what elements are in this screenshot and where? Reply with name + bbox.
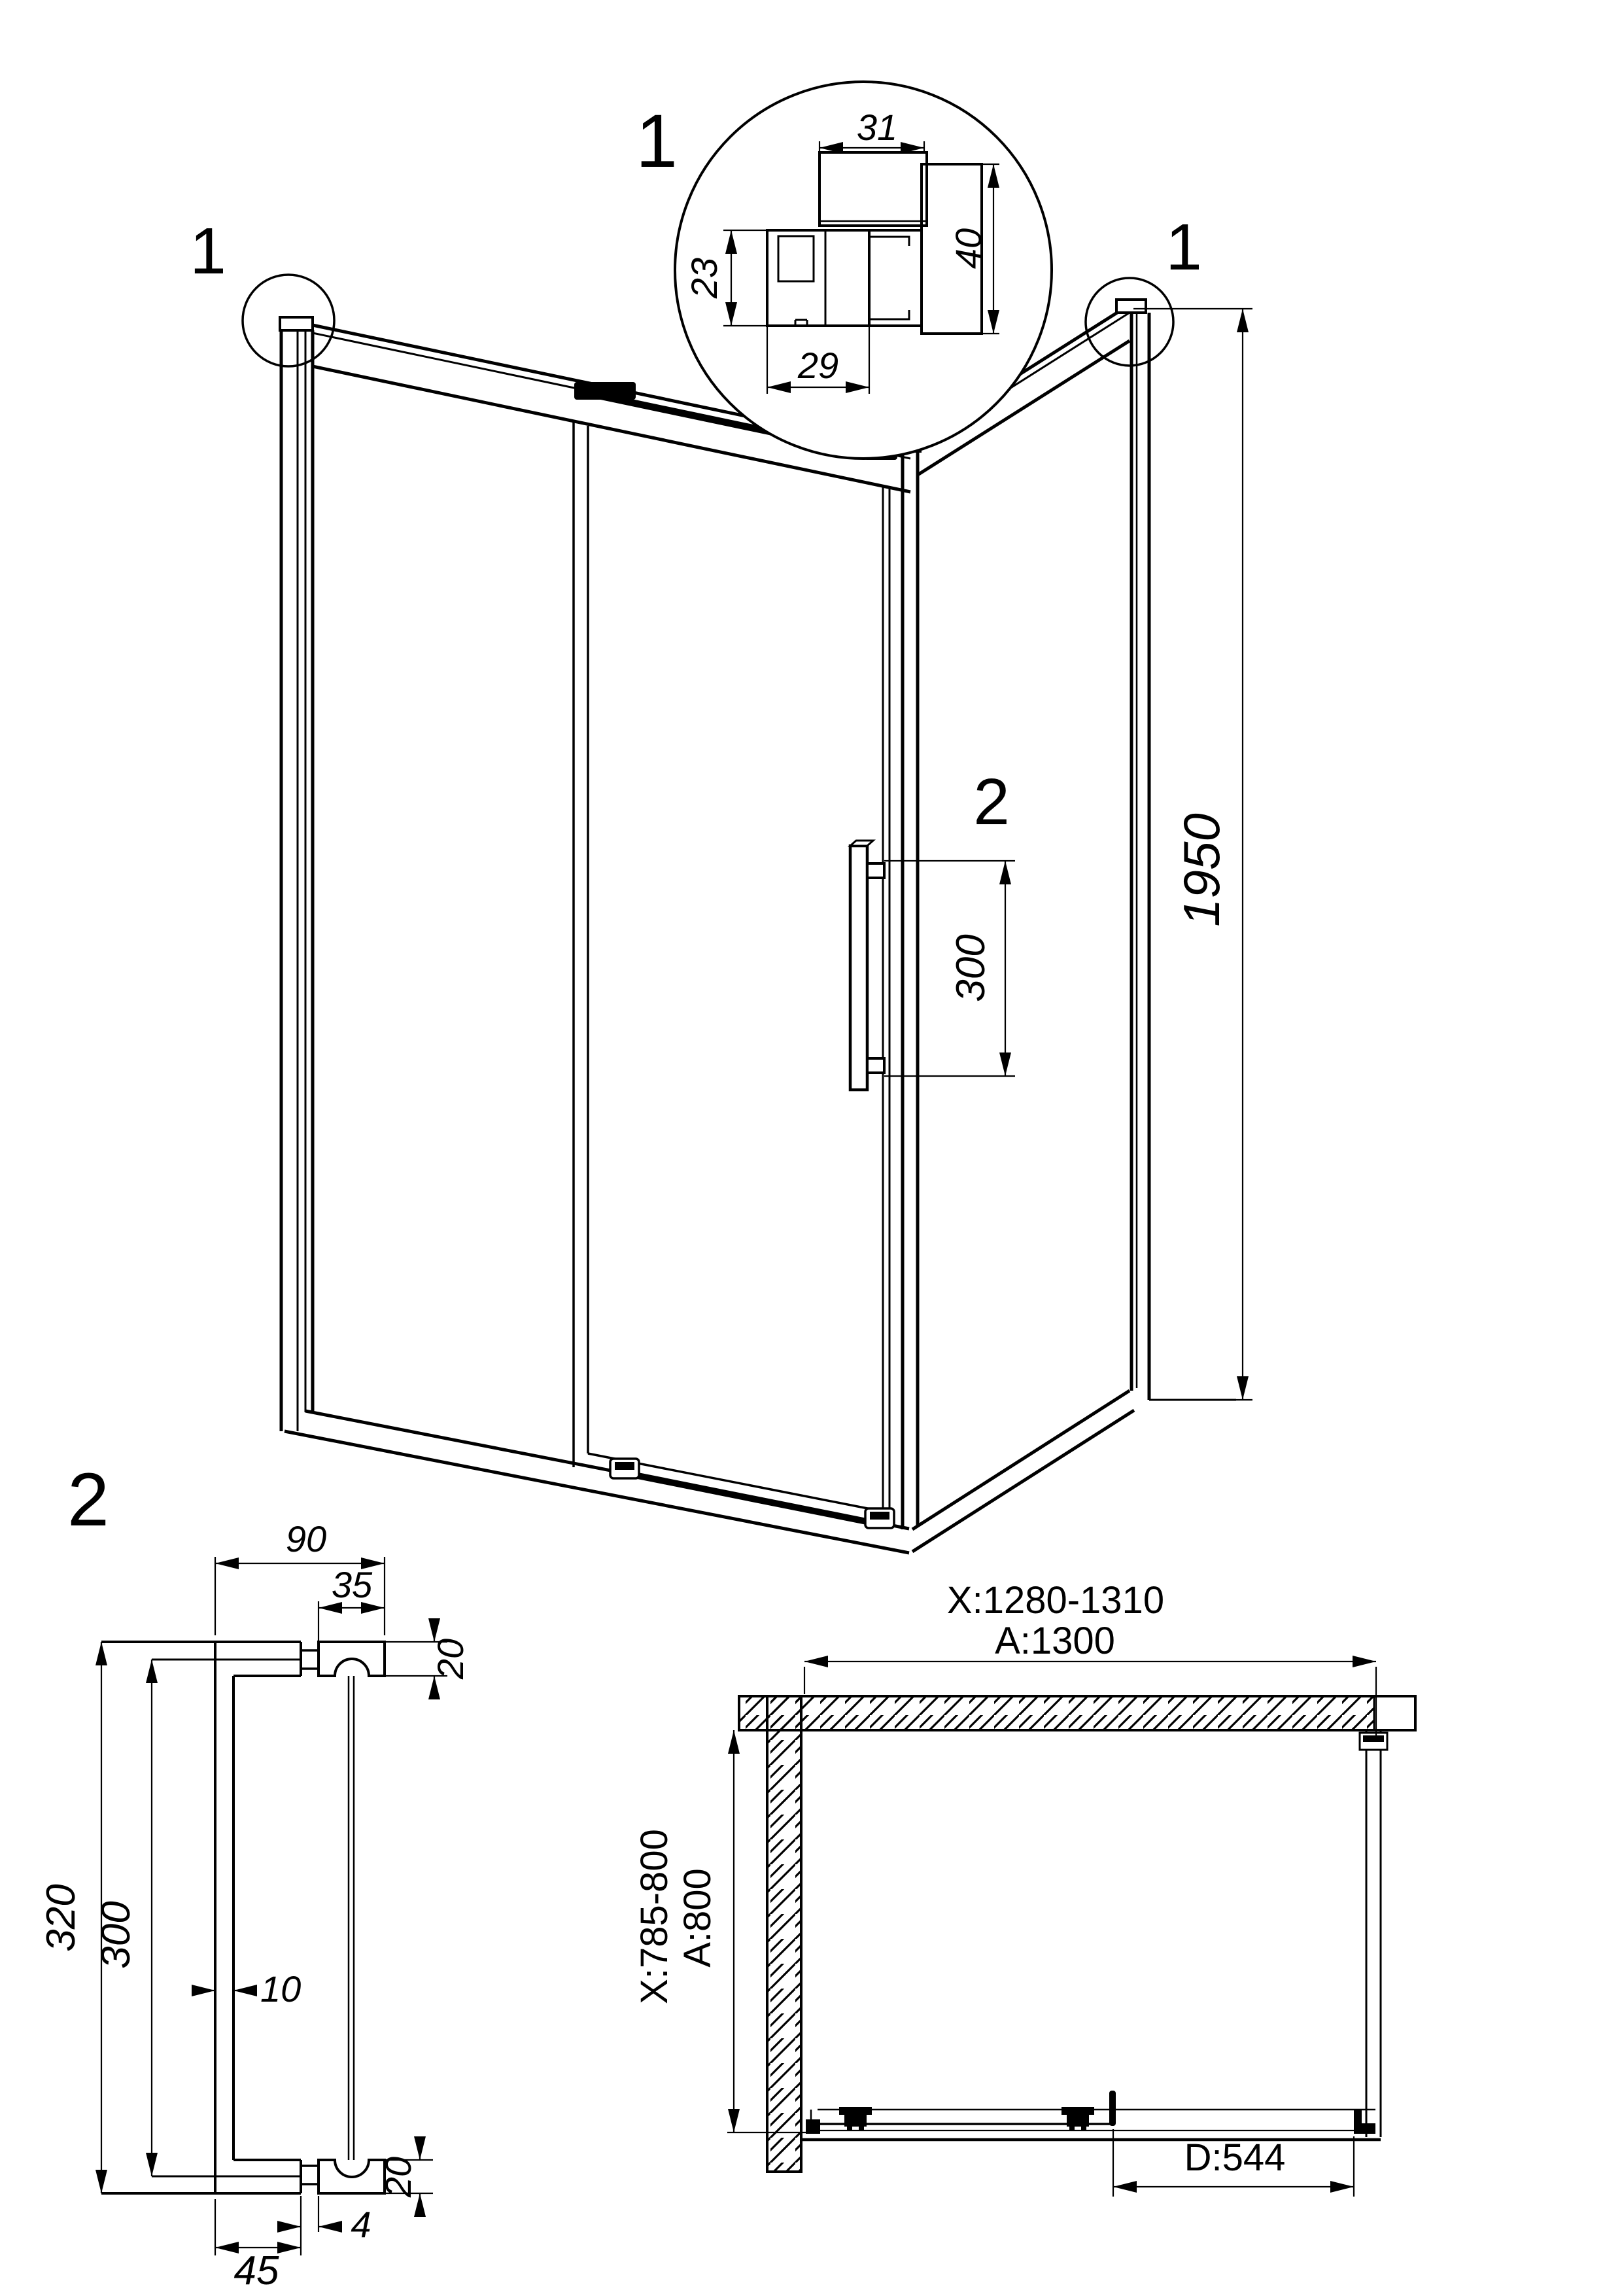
dim-4: 4 (279, 2196, 371, 2245)
door-handle-3d (850, 841, 884, 1090)
roller-right (1061, 2107, 1094, 2131)
dim-text-300: 300 (94, 1901, 139, 1968)
dim-text-width: A:1300 (995, 1620, 1115, 1662)
top-roller-left (574, 382, 636, 400)
handle-side-view (101, 1642, 385, 2193)
wall-left (767, 1696, 801, 2172)
dim-10: 10 (193, 1968, 301, 2009)
roller-left (839, 2107, 872, 2131)
dim-height-1950: 1950 (1133, 309, 1252, 1400)
dim-text-300-3d: 300 (948, 934, 993, 1001)
wall-bracket (806, 2119, 820, 2134)
plan-view: X:1280-1310 A:1300 X:785-800 A:800 D:544 (633, 1579, 1415, 2197)
dim-text-1950: 1950 (1173, 813, 1230, 927)
dim-text-90: 90 (286, 1518, 326, 1559)
wall-top (739, 1696, 1415, 1730)
right-wall-post (1116, 300, 1149, 1400)
bottom-rail (285, 1411, 909, 1553)
door-bottom-track-bar (625, 1473, 880, 1524)
handle-top-cap (850, 841, 873, 846)
door-end-pin (1109, 2091, 1116, 2126)
detail-2-handle: 2 90 (39, 1458, 471, 2293)
door-right-edge (883, 487, 889, 1512)
dim-text-45: 45 (234, 2248, 279, 2293)
detail-1-profile-section: 1 31 40 (636, 82, 1052, 459)
dim-35: 35 (319, 1564, 385, 1642)
handle-mount-top (319, 1642, 385, 1676)
callout-label-left: 1 (190, 215, 226, 288)
track-plan (801, 2091, 1381, 2140)
bottom-guide-right (865, 1508, 894, 1528)
side-bottom-edge (912, 1391, 1236, 1552)
dim-300: 300 (94, 1660, 152, 2176)
dim-20-top: 20 (385, 1620, 471, 1698)
corner-bracket (1354, 2110, 1375, 2134)
corner-post (901, 433, 920, 1529)
handle-mount-bottom (319, 2160, 385, 2193)
dim-text-width-range: X:1280-1310 (947, 1579, 1164, 1622)
dim-20-bottom: 20 (377, 2138, 433, 2216)
handle-callout-label: 2 (973, 765, 1010, 839)
technical-drawing: 1 1 2 300 1950 1 (0, 0, 1622, 2296)
dim-text-door: D:544 (1184, 2136, 1286, 2179)
callout-label-right: 1 (1165, 211, 1202, 284)
dim-text-depth-range: X:785-800 (633, 1829, 676, 2004)
dim-320: 320 (39, 1642, 101, 2193)
callout-circle-right (1086, 278, 1173, 366)
dim-45: 45 (215, 2196, 301, 2293)
handle-standoff-top (867, 863, 884, 878)
side-glass-plan (1360, 1730, 1387, 2137)
bottom-guide-left (610, 1459, 639, 1478)
dim-text-depth: A:800 (676, 1868, 719, 1968)
dim-text-35: 35 (332, 1564, 373, 1605)
dim-text-40: 40 (948, 228, 989, 269)
left-wall-post (280, 317, 313, 1431)
drawing-page: 1 1 2 300 1950 1 (0, 0, 1622, 2296)
dim-text-4: 4 (351, 2204, 371, 2245)
dim-text-29: 29 (797, 345, 838, 386)
detail-1-label: 1 (636, 99, 678, 183)
dim-text-31: 31 (857, 107, 897, 148)
dim-text-20-bottom: 20 (377, 2157, 419, 2198)
enclosure-3d-view: 1 1 2 300 1950 (190, 211, 1252, 1553)
dim-text-23: 23 (683, 258, 725, 299)
handle-standoff-bottom (867, 1058, 884, 1073)
dim-text-20-top: 20 (430, 1639, 471, 1680)
fixed-panel-edge (574, 423, 588, 1467)
detail-2-label: 2 (67, 1458, 109, 1542)
dim-text-10: 10 (260, 1968, 301, 2009)
dim-text-320: 320 (39, 1884, 84, 1951)
